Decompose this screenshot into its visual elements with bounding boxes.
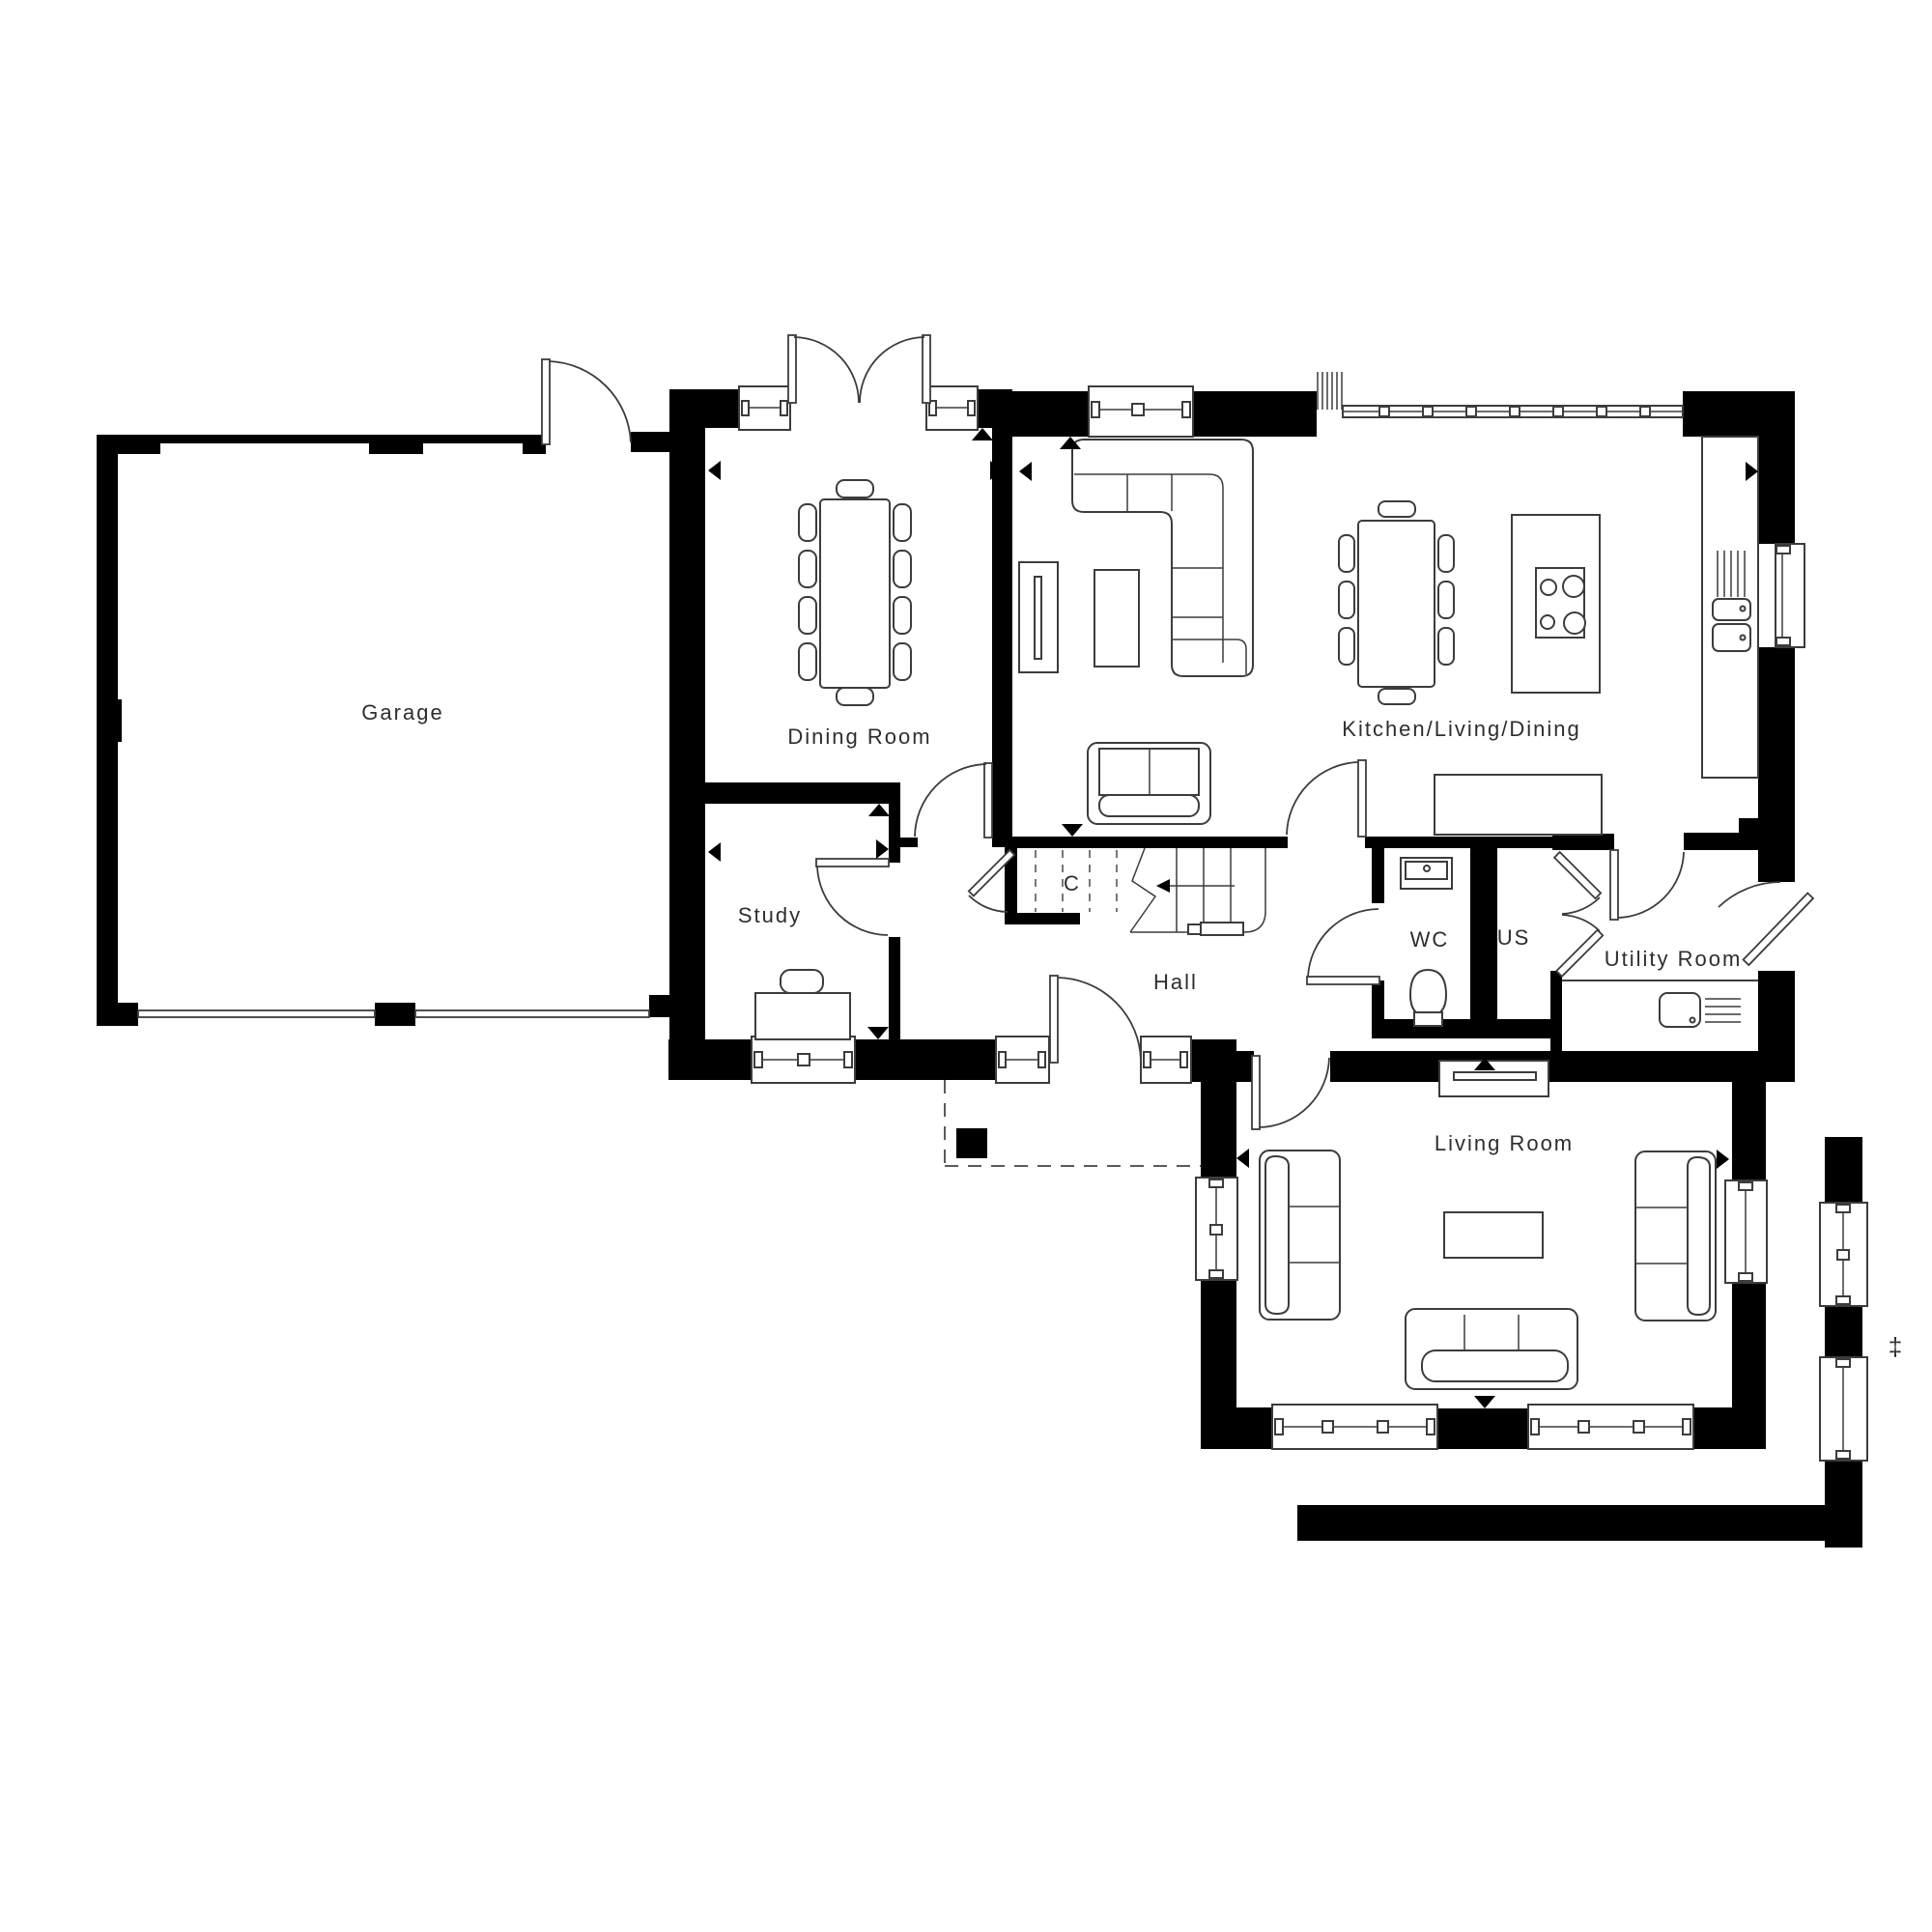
room-label-utility: Utility Room — [1605, 947, 1743, 971]
window — [1272, 1405, 1437, 1449]
window — [1528, 1405, 1693, 1449]
coffee-table — [1444, 1212, 1543, 1258]
room-label-kitchen: Kitchen/Living/Dining — [1342, 717, 1580, 741]
room-label-hall: Hall — [1153, 970, 1198, 994]
living-room-door — [1252, 1056, 1329, 1129]
wc-basin — [1401, 858, 1452, 889]
porch-pillar — [956, 1128, 987, 1158]
dining-table-and-chairs — [799, 480, 911, 705]
loveseat — [1088, 743, 1210, 824]
kitchen-door — [1287, 760, 1366, 837]
wc-door — [1307, 909, 1379, 984]
window — [1141, 1037, 1191, 1083]
window — [996, 1037, 1049, 1083]
window — [1776, 544, 1804, 647]
window — [1820, 1203, 1867, 1306]
window — [1196, 1178, 1237, 1280]
room-label-living: Living Room — [1435, 1131, 1574, 1155]
utility-counter — [1562, 980, 1758, 1027]
radiator-hatch — [1318, 372, 1342, 410]
sofa-right — [1635, 1151, 1716, 1321]
us-double-doors — [1554, 852, 1603, 977]
study-desk — [755, 970, 850, 1039]
window — [1820, 1357, 1867, 1461]
room-label-wc: WC — [1410, 927, 1450, 952]
room-label-dining: Dining Room — [787, 724, 931, 749]
window — [1089, 386, 1193, 437]
kitchen-table-and-chairs — [1339, 501, 1454, 704]
plot-position-marker: ‡ — [1889, 1332, 1902, 1361]
wc-toilet — [1410, 970, 1446, 1026]
glazed-screen — [1343, 406, 1683, 417]
window — [752, 1037, 855, 1083]
utility-door — [1610, 850, 1684, 920]
fireplace-media-unit — [1439, 1061, 1548, 1096]
window — [1725, 1180, 1767, 1283]
room-label-cupboard: C — [1064, 871, 1081, 895]
front-door — [1050, 976, 1141, 1063]
dining-french-doors — [788, 335, 930, 403]
room-label-garage: Garage — [361, 700, 443, 724]
kitchen-counter-right — [1702, 437, 1758, 778]
room-label-us: US — [1497, 925, 1531, 950]
study-door — [816, 859, 889, 935]
tv-unit — [1019, 562, 1058, 672]
window — [739, 386, 790, 430]
sofa-bottom — [1406, 1309, 1577, 1389]
window — [926, 386, 978, 430]
rug — [1094, 570, 1139, 667]
floor-plan-page: Garage Dining Room Kitchen/Living/Dining… — [0, 0, 1932, 1932]
stair-direction-arrow — [1156, 879, 1235, 893]
kitchen-counter-bottom — [1435, 775, 1602, 835]
floor-plan-canvas: Garage Dining Room Kitchen/Living/Dining… — [0, 0, 1932, 1932]
sofa-left — [1260, 1151, 1340, 1320]
dining-door — [915, 763, 992, 838]
room-label-study: Study — [738, 903, 802, 927]
garage-side-door — [542, 359, 631, 444]
kitchen-island — [1512, 515, 1600, 693]
